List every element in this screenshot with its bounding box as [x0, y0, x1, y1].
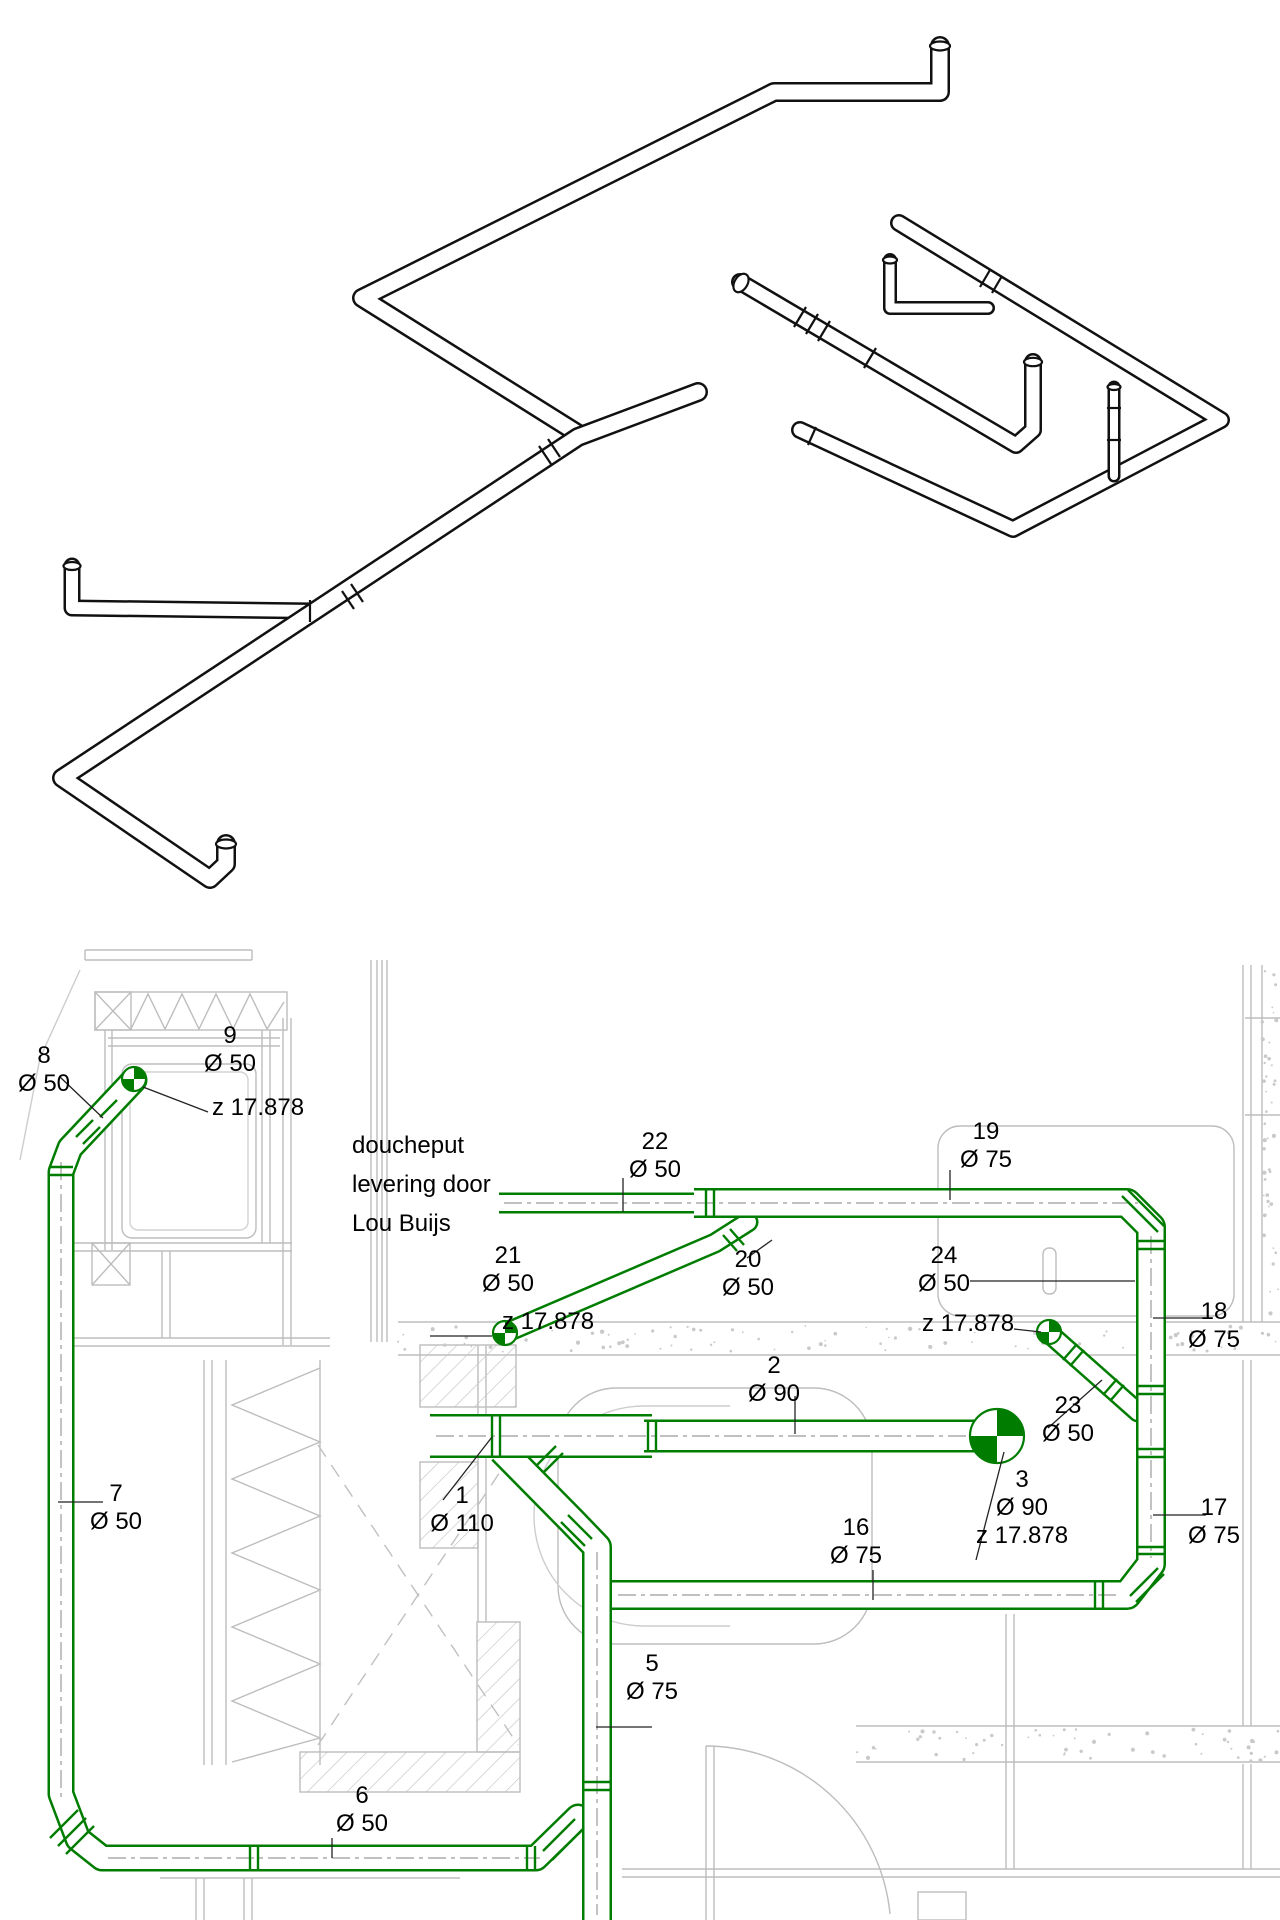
iso-main-lower-run-core — [62, 392, 698, 879]
speckle-dot — [921, 1729, 925, 1733]
speckle-dot — [1264, 1756, 1266, 1758]
speckle-dot — [634, 1333, 636, 1335]
speckle-dot — [402, 1334, 404, 1336]
speckle-dot — [1262, 1171, 1266, 1175]
cad-drawing-canvas: doucheputlevering doorLou Buijs 8Ø 509Ø … — [0, 0, 1280, 1920]
speckle-dot — [1228, 1729, 1232, 1733]
speckle-dot — [1267, 1137, 1269, 1139]
speckle-dot — [1105, 1330, 1107, 1332]
iso-main-top-run-core — [362, 46, 940, 433]
iso-pipe-opening — [883, 257, 897, 264]
speckle-dot — [1269, 1291, 1271, 1293]
speckle-dot — [804, 1325, 806, 1327]
speckle-dot — [757, 1338, 760, 1341]
speckle-dot — [576, 1341, 580, 1345]
speckle-dot — [975, 1743, 978, 1746]
speckle-dot — [1268, 1311, 1272, 1315]
speckle-dot — [502, 1351, 504, 1353]
speckle-dot — [1192, 1348, 1195, 1351]
piping-drawing-svg — [0, 0, 1280, 1920]
speckle-dot — [1039, 1734, 1042, 1737]
leader-line — [143, 1087, 208, 1112]
speckle-dot — [1230, 1748, 1232, 1750]
speckle-dot — [1261, 1037, 1265, 1041]
speckle-dot — [431, 1327, 435, 1331]
speckle-dot — [1271, 1006, 1273, 1008]
speckle-dot — [879, 1342, 882, 1345]
survey-point-markers — [122, 1067, 1061, 1463]
isometric-pipe-openings — [64, 42, 1121, 849]
leader-line — [976, 1452, 1004, 1560]
speckle-dot — [1177, 1332, 1180, 1335]
speckle-dot — [956, 1731, 958, 1733]
speckle-dot — [916, 1738, 919, 1741]
speckle-dot — [774, 1349, 776, 1351]
speckle-dot — [1237, 1756, 1240, 1759]
speckle-dot — [600, 1330, 604, 1334]
speckle-dot — [1267, 1333, 1271, 1337]
speckle-dot — [1268, 1042, 1270, 1044]
speckle-dot — [443, 1343, 446, 1346]
speckle-dot — [1221, 1346, 1223, 1348]
speckle-dot — [1028, 1736, 1030, 1738]
speckle-dot — [972, 1752, 974, 1754]
iso-pipe-opening — [1108, 384, 1121, 390]
speckle-dot — [1229, 1325, 1233, 1329]
speckle-dot — [1108, 1733, 1111, 1736]
speckle-dot — [1001, 1744, 1003, 1746]
speckle-dot — [1176, 1343, 1179, 1346]
speckle-dot — [834, 1332, 838, 1336]
speckle-dot — [1080, 1750, 1083, 1753]
speckle-dot — [824, 1344, 827, 1347]
speckle-dot — [730, 1350, 733, 1353]
speckle-dot — [990, 1734, 993, 1737]
speckle-dot — [1272, 973, 1275, 976]
speckle-dot — [963, 1758, 966, 1761]
speckle-dot — [671, 1345, 673, 1347]
speckle-dot — [1270, 1202, 1274, 1206]
speckle-dot — [621, 1340, 625, 1344]
speckle-dot — [1265, 1110, 1268, 1113]
speckle-dot — [1274, 983, 1277, 986]
speckle-dot — [1273, 1012, 1275, 1014]
speckle-dot — [690, 1349, 692, 1351]
speckle-dot — [591, 1332, 594, 1335]
pipe-20-core — [510, 1222, 748, 1331]
speckle-dot — [570, 1349, 573, 1352]
speckle-dot — [1274, 1079, 1277, 1082]
speckle-dot — [1263, 1213, 1267, 1217]
speckle-dot — [1239, 1326, 1243, 1330]
speckle-dot — [524, 1338, 527, 1341]
leader-line — [1048, 1380, 1102, 1428]
speckle-dot — [1263, 1138, 1267, 1142]
speckle-dot — [692, 1328, 696, 1332]
speckle-dot — [1206, 1350, 1209, 1353]
leader-line — [747, 1240, 772, 1258]
survey-point-9 — [122, 1067, 146, 1091]
speckle-dot — [670, 1326, 672, 1328]
speckle-dot — [1273, 1083, 1276, 1086]
speckle-dot — [1267, 1200, 1270, 1203]
speckle-dot — [819, 1342, 823, 1346]
speckle-dot — [856, 1751, 858, 1753]
speckle-dot — [1064, 1752, 1066, 1754]
speckle-dot — [938, 1737, 941, 1740]
speckle-dot — [1190, 1334, 1194, 1338]
speckle-dot — [1227, 1741, 1229, 1743]
speckle-dot — [489, 1345, 493, 1349]
speckle-dot — [1162, 1754, 1166, 1758]
pipe-23-core — [1051, 1335, 1138, 1412]
speckle-dot — [824, 1340, 826, 1342]
speckle-dot — [1272, 1262, 1275, 1265]
speckle-dot — [894, 1336, 897, 1339]
speckle-dot — [1262, 1079, 1266, 1083]
iso-pipe-opening — [930, 42, 950, 51]
isometric-pipe-run — [62, 46, 1221, 879]
speckle-dot — [1202, 1733, 1204, 1735]
speckle-dot — [1027, 1348, 1029, 1350]
speckle-dot — [617, 1341, 621, 1345]
speckle-dot — [1262, 1233, 1266, 1237]
speckle-dot — [1089, 1757, 1092, 1760]
speckle-dot — [1261, 1332, 1264, 1335]
speckle-dot — [884, 1349, 886, 1351]
speckle-dot — [1277, 1730, 1280, 1733]
speckle-dot — [1092, 1740, 1096, 1744]
speckle-dot — [919, 1735, 922, 1738]
speckle-dot — [1191, 1330, 1193, 1332]
survey-point-20 — [493, 1321, 517, 1345]
speckle-dot — [471, 1346, 473, 1348]
speckle-dot — [1264, 1062, 1266, 1064]
speckle-dot — [908, 1327, 912, 1331]
speckle-dot — [1249, 1759, 1252, 1762]
speckle-dot — [791, 1331, 793, 1333]
plan-green-piping — [61, 1080, 1151, 1920]
speckle-dot — [1252, 1741, 1255, 1744]
speckle-dot — [687, 1326, 689, 1328]
speckle-dot — [713, 1341, 715, 1343]
iso-pipe-opening — [64, 562, 81, 570]
speckle-dot — [928, 1345, 931, 1348]
speckle-dot — [1192, 1728, 1196, 1732]
speckle-dot — [1078, 1342, 1081, 1345]
speckle-dot — [1250, 1752, 1253, 1755]
speckle-dot — [464, 1343, 466, 1345]
speckle-dot — [1271, 1102, 1273, 1104]
speckle-dot — [1075, 1728, 1077, 1730]
speckle-dot — [1180, 1342, 1184, 1346]
speckle-dot — [397, 1341, 399, 1343]
speckle-dot — [1035, 1729, 1038, 1732]
speckle-dot — [1268, 1206, 1270, 1208]
speckle-dot — [886, 1328, 888, 1330]
speckle-dot — [866, 1756, 870, 1760]
speckle-dot — [651, 1329, 654, 1332]
speckle-dot — [943, 1341, 947, 1345]
speckle-dot — [1145, 1731, 1149, 1735]
speckle-dot — [807, 1346, 811, 1350]
isometric-coupling-rings — [310, 270, 1121, 622]
speckle-dot — [477, 1344, 479, 1346]
iso-right-loop-core — [800, 223, 1221, 529]
speckle-dot — [1265, 1075, 1267, 1077]
speckle-dot — [1271, 1064, 1273, 1066]
speckle-dot — [1262, 1147, 1265, 1150]
speckle-dot — [1258, 1758, 1262, 1762]
speckle-dot — [1227, 1331, 1231, 1335]
speckle-dot — [1063, 1728, 1066, 1731]
speckle-dot — [731, 1328, 734, 1331]
speckle-dot — [608, 1334, 610, 1336]
speckle-dot — [1263, 1195, 1265, 1197]
speckle-dot — [1233, 1347, 1236, 1350]
speckle-dot — [1264, 1122, 1267, 1125]
speckle-dot — [1074, 1737, 1076, 1739]
iso-main-lower-run-outline — [62, 392, 698, 879]
speckle-dot — [865, 1327, 867, 1329]
speckle-dot — [1274, 1018, 1278, 1022]
speckle-dot — [965, 1737, 967, 1739]
speckle-dot — [974, 1332, 976, 1334]
iso-pipe-opening — [1024, 358, 1042, 366]
speckle-dot — [1265, 1091, 1267, 1093]
speckle-dot — [609, 1345, 612, 1348]
speckle-dot — [971, 1341, 973, 1343]
speckle-dot — [932, 1730, 935, 1733]
iso-pipe-opening — [216, 840, 236, 849]
speckle-dot — [551, 1330, 553, 1332]
speckle-dot — [1103, 1334, 1105, 1336]
speckle-dot — [1264, 1178, 1267, 1181]
speckle-dot — [888, 1337, 890, 1339]
speckle-dot — [1195, 1743, 1198, 1746]
speckle-dot — [875, 1748, 877, 1750]
speckle-dot — [699, 1329, 702, 1332]
speckle-dot — [1131, 1748, 1135, 1752]
speckle-dot — [918, 1328, 920, 1330]
speckle-dot — [1122, 1347, 1124, 1349]
speckle-dot — [1053, 1735, 1055, 1737]
speckle-dot — [659, 1348, 661, 1350]
speckle-dot — [872, 1746, 875, 1749]
speckle-dot — [1275, 1750, 1279, 1754]
speckle-dot — [742, 1331, 744, 1333]
speckle-dot — [908, 1731, 910, 1733]
speckle-dot — [710, 1344, 712, 1346]
speckle-dot — [1264, 970, 1266, 972]
leader-line — [60, 1077, 103, 1118]
speckle-dot — [1223, 1738, 1227, 1742]
speckle-dot — [1272, 1134, 1276, 1138]
speckle-dot — [627, 1339, 629, 1341]
survey-point-3 — [970, 1409, 1024, 1463]
speckle-dot — [1064, 1748, 1068, 1752]
speckle-dot — [1247, 1745, 1251, 1749]
speckle-dot — [1200, 1753, 1202, 1755]
speckle-dot — [403, 1348, 406, 1351]
speckle-dot — [674, 1335, 677, 1338]
speckle-dot — [1266, 1193, 1270, 1197]
speckle-dot — [983, 1739, 986, 1742]
iso-main-top-run-outline — [362, 46, 940, 433]
speckle-dot — [1169, 1336, 1173, 1340]
speckle-dot — [1277, 1288, 1279, 1290]
speckle-dot — [1264, 1054, 1268, 1058]
speckle-dot — [625, 1344, 629, 1348]
speckle-dot — [1273, 1247, 1275, 1249]
speckle-dot — [1261, 1020, 1264, 1023]
speckle-dot — [935, 1753, 938, 1756]
speckle-dot — [1275, 1251, 1278, 1254]
speckle-dot — [602, 1346, 606, 1350]
speckle-dot — [1151, 1750, 1155, 1754]
speckle-dot — [1267, 1057, 1271, 1061]
speckle-dot — [454, 1325, 457, 1328]
speckle-dot — [1015, 1345, 1017, 1347]
speckle-dot — [1275, 1341, 1277, 1343]
speckle-dot — [1269, 1171, 1272, 1174]
